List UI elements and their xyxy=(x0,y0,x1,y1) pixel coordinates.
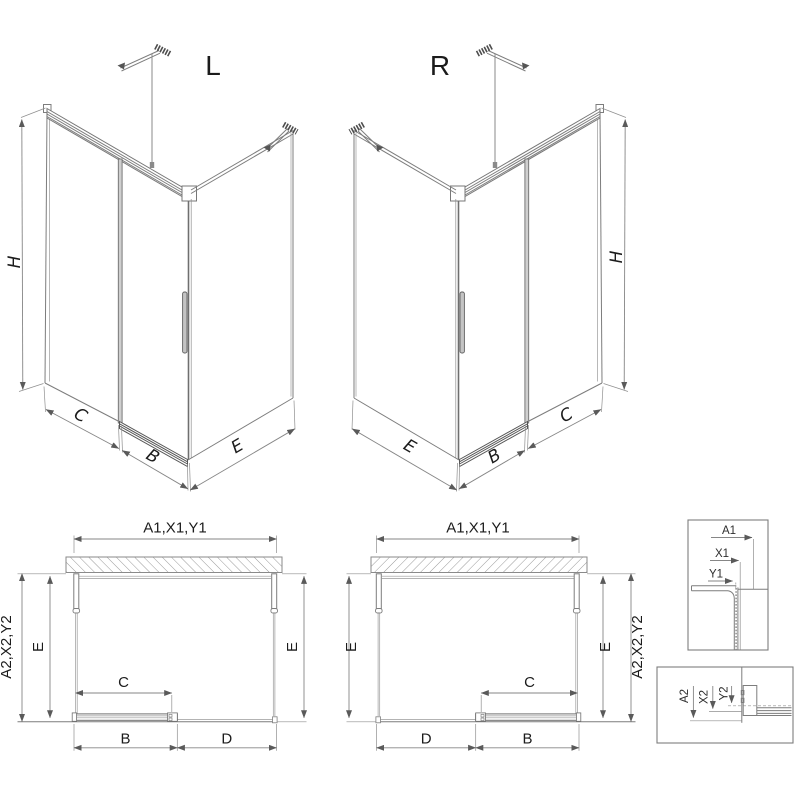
plan-R-D-label: D xyxy=(421,731,432,748)
detail-A1-label: A1 xyxy=(722,525,736,537)
plan-art-L xyxy=(18,536,307,751)
detail-Y1-label: Y1 xyxy=(709,569,723,581)
plan-view-R: A1,X1,Y1 A2,X2,Y2 E E C D B xyxy=(343,520,646,751)
plan-L-D-label: D xyxy=(221,731,232,748)
plan-R-depth-label: A2,X2,Y2 xyxy=(629,615,646,678)
detail-Y2-label: Y2 xyxy=(718,686,730,700)
iso-R-title: R xyxy=(430,50,450,81)
plan-R-E-left-label: E xyxy=(343,642,360,652)
plan-R-width-label: A1,X1,Y1 xyxy=(446,520,509,537)
plan-R-E-right-label: E xyxy=(597,642,614,652)
dim-label-H-right: H xyxy=(607,250,627,263)
dim-label-B-right: B xyxy=(484,445,504,468)
technical-drawing-page: L H C B E R H E B C A1,X1,Y1 A2,X2,Y2 E … xyxy=(0,0,800,800)
plan-view-L: A1,X1,Y1 A2,X2,Y2 E E C B D xyxy=(0,520,307,751)
plan-L-C-label: C xyxy=(118,674,129,691)
detail-X1-label: X1 xyxy=(715,548,729,560)
dim-label-E-left: E xyxy=(228,435,248,458)
iso-L-title: L xyxy=(205,50,221,81)
plan-L-width-label: A1,X1,Y1 xyxy=(143,520,206,537)
plan-R-C-label: C xyxy=(524,674,535,691)
dim-label-B-left: B xyxy=(142,445,162,468)
plan-art-R xyxy=(347,536,636,751)
detail-X2-label: X2 xyxy=(699,690,711,704)
shower-enclosure-drawing: L H C B E R H E B C A1,X1,Y1 A2,X2,Y2 E … xyxy=(0,0,800,800)
dim-label-E-right: E xyxy=(400,435,420,458)
plan-L-B-label: B xyxy=(120,731,130,748)
plan-L-depth-label: A2,X2,Y2 xyxy=(0,615,15,678)
plan-R-B-label: B xyxy=(522,731,532,748)
dim-label-H-left: H xyxy=(5,255,25,268)
plan-L-E-left-label: E xyxy=(30,642,47,652)
detail-A2-label: A2 xyxy=(679,689,691,703)
iso-view-L: L H C B E xyxy=(5,47,297,492)
iso-art-L xyxy=(19,47,297,492)
iso-art-R xyxy=(350,47,628,492)
iso-view-R: R H E B C xyxy=(350,47,628,492)
plan-L-E-right-label: E xyxy=(284,642,301,652)
detail-view-wall-profile: A1 X1 Y1 xyxy=(688,520,768,650)
detail-view-rail-profile: A2 X2 Y2 xyxy=(657,667,793,743)
